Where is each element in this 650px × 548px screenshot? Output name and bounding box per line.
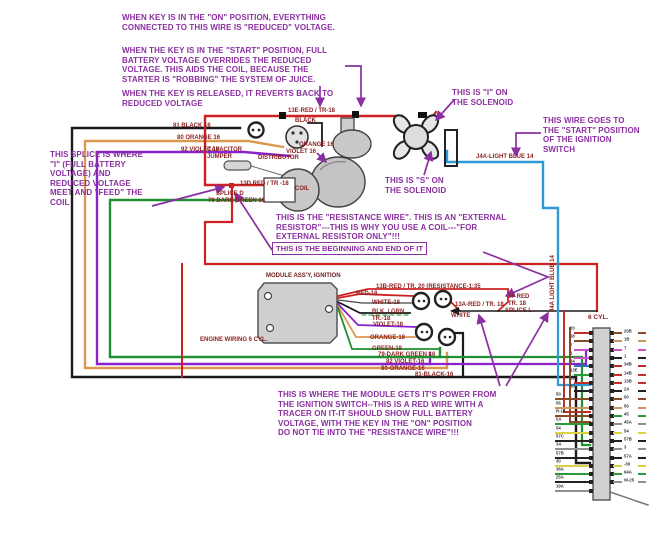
pin-wire-right-dash	[638, 465, 646, 467]
pin-wire-right	[613, 365, 622, 367]
label-red-18: RED-18	[356, 291, 377, 298]
label-79-green: 79 DARK GREEN 16	[208, 198, 265, 205]
label-black: BLACK	[295, 118, 316, 125]
pin-wire-right	[613, 415, 622, 417]
note-s-solenoid: THIS IS "S" ONTHE SOLENOID	[385, 176, 446, 195]
pin-left	[589, 389, 593, 393]
pin-wire-left	[555, 448, 593, 450]
pin-left	[589, 422, 593, 426]
pin-left	[589, 406, 593, 410]
pin-wire-right-dash	[638, 440, 646, 442]
pin-label-right: 45	[624, 412, 629, 417]
pin-wire-left	[555, 423, 593, 425]
pin-wire-right	[613, 332, 622, 334]
pin-label-left: 13E	[570, 368, 578, 373]
pin-label-left: 36A	[556, 467, 564, 472]
pin-left	[589, 364, 593, 368]
pin-wire-right	[613, 457, 622, 459]
label-capacitor: CAPACITORJUMPER	[207, 147, 242, 160]
pin-left	[589, 439, 593, 443]
label-distributor: DISTRIBUTOR	[258, 155, 299, 162]
pin-label-left: R-14	[556, 409, 565, 414]
pointer-arrow-start-voltage	[345, 66, 361, 106]
pin-label-left: 19A	[556, 484, 564, 489]
pin-left	[589, 356, 593, 360]
label-13b-red: 13B-RED / TR. 20 (RESISTANCE-1:35	[376, 284, 481, 291]
pin-label-left: 20	[570, 326, 575, 331]
label-j4a-blue: J4A-LIGHT BLUE 14	[476, 154, 533, 161]
pin-label-left: 7	[570, 343, 572, 348]
note-begin-end: THIS IS THE BEGINNING AND END OF IT	[272, 242, 427, 255]
label-orange-18: ORANGE-18	[370, 335, 405, 342]
pin-label-left: 13C	[570, 376, 578, 381]
pin-label-right: 14B	[624, 371, 632, 376]
pin-wire-right	[613, 340, 622, 342]
pin-wire-right	[613, 374, 622, 376]
pin-label-left: 3A	[556, 442, 561, 447]
label-orange-16: ORANGE 16	[299, 142, 334, 149]
pin-wire-right-dash	[638, 407, 646, 409]
capacitor	[224, 161, 288, 177]
pin-wire-right	[613, 448, 622, 450]
pin-label-left: 18	[570, 334, 575, 339]
pin-label-right: 50	[624, 395, 629, 400]
pin-label-right: 56	[624, 404, 629, 409]
label-engine-wiring: ENGINE WIRING 6 CYL.	[200, 337, 267, 344]
wiring-diagram: WHEN KEY IS IN THE "ON" POSITION, EVERYT…	[0, 0, 650, 548]
pin-left	[589, 431, 593, 435]
pin-label-right: 20B	[624, 329, 632, 334]
pin-left	[589, 489, 593, 493]
pin-left	[589, 472, 593, 476]
pin-label-left: 54	[556, 426, 561, 431]
pin-label-right: -30	[624, 462, 630, 467]
pin-wire-right	[613, 349, 622, 351]
pin-label-left: 34	[570, 359, 575, 364]
pin-label-right: 57B	[624, 437, 632, 442]
harness-connector-6cyl	[593, 328, 610, 500]
pin-left	[589, 331, 593, 335]
pin-left	[589, 480, 593, 484]
pin-label-right: 1	[624, 354, 626, 359]
label-13d-red: 13D RED / TR -18	[240, 181, 289, 188]
pin-wire-right-dash	[638, 423, 646, 425]
label-blk-grn: BLK. / GRNTR.-18	[372, 309, 404, 322]
pin-wire-right-dash	[638, 432, 646, 434]
pin-wire-right-dash	[638, 365, 646, 367]
pin-wire-right	[613, 432, 622, 434]
note-resistance: THIS IS THE "RESISTANCE WIRE". THIS IS A…	[276, 213, 506, 242]
pin-wire-right-dash	[638, 398, 646, 400]
pin-label-right: 13B	[624, 379, 632, 384]
note-key-start: WHEN THE KEY IS IN THE "START" POSITION,…	[122, 46, 327, 84]
pin-wire-left	[555, 490, 593, 492]
pin-label-left: 1	[570, 351, 572, 356]
label-coil: COIL	[295, 186, 309, 193]
pin-wire-right-dash	[638, 374, 646, 376]
pin-wire-right	[613, 423, 622, 425]
pin-wire-right-dash	[638, 448, 646, 450]
pin-label-left: 10	[570, 384, 575, 389]
pointer-arrow-start-wire	[516, 133, 541, 156]
pin-wire-right	[613, 481, 622, 483]
label-82-violet-b: 82 VIOLET-16	[386, 359, 424, 366]
pin-wire-right-dash	[638, 332, 646, 334]
label-white: WHITE	[451, 313, 470, 320]
label-6cyl: 6 CYL.	[588, 315, 608, 322]
pin-label-left: 57C	[556, 434, 564, 439]
pin-label-left: 25A	[556, 475, 564, 480]
note-start-wire: THIS WIRE GOES TOTHE "START" POSIITIONOF…	[543, 116, 640, 154]
label-j4a-blue-vertical: J4A LIGHT BLUE 14	[550, 255, 556, 312]
label-violet-18: VIOLET-18	[373, 322, 403, 329]
pointer-arrow-module-power-2	[506, 313, 548, 386]
pin-label-right: 1B	[624, 337, 629, 342]
note-i-solenoid: THIS IS "I" ONTHE SOLENOID	[452, 88, 513, 107]
pin-label-right: W-25	[624, 478, 634, 483]
pin-label-left: 57B	[556, 451, 564, 456]
wire-black-branch	[455, 333, 463, 377]
pin-wire-right	[613, 398, 622, 400]
pin-wire-right-dash	[638, 349, 646, 351]
pin-wire-right	[613, 357, 622, 359]
label-79-green-b: 79-DARK GREEN 16	[378, 352, 435, 359]
label-module: MODULE ASS'Y, IGNITION	[266, 273, 341, 280]
pin-left	[589, 339, 593, 343]
harness-diagonal	[610, 492, 648, 505]
pin-wire-right	[613, 407, 622, 409]
pin-label-right: 94A	[624, 470, 632, 475]
pin-label-left: 30	[556, 459, 561, 464]
pin-wire-right-dash	[638, 457, 646, 459]
pin-wire-right	[613, 465, 622, 467]
pin-label-left: 50	[556, 392, 561, 397]
pin-left	[589, 348, 593, 352]
distributor-bullet-connector	[249, 123, 264, 138]
wire-tick	[418, 112, 427, 118]
pointer-arrow-violet-terminal	[317, 153, 326, 162]
pin-label-left: 56	[556, 401, 561, 406]
pin-wire-right-dash	[638, 481, 646, 483]
note-key-on: WHEN KEY IS IN THE "ON" POSITION, EVERYT…	[122, 13, 335, 32]
pin-left	[589, 381, 593, 385]
pin-wire-right	[613, 382, 622, 384]
pin-left	[589, 447, 593, 451]
pin-left	[589, 456, 593, 460]
pin-left	[589, 414, 593, 418]
pin-wire-right-dash	[638, 415, 646, 417]
label-81-black: 81 BLACK 16	[173, 123, 211, 130]
pin-wire-right-dash	[638, 382, 646, 384]
wire-tick	[279, 112, 286, 119]
pin-label-right: 57A	[624, 454, 632, 459]
pin-wire-right	[613, 473, 622, 475]
label-13a-red: 13A-RED / TR. 18	[455, 302, 504, 309]
bullet-connectors	[413, 291, 455, 345]
label-81-black-b: 81-BLACK-16	[415, 372, 453, 379]
pin-label-right: 45A	[624, 420, 632, 425]
pin-label-right: 54	[624, 429, 629, 434]
pointer-arrow-module-power-1	[479, 315, 500, 386]
pin-wire-right-dash	[638, 357, 646, 359]
pin-wire-right-dash	[638, 390, 646, 392]
pin-wire-right-dash	[638, 340, 646, 342]
pin-label-right: 7	[624, 346, 626, 351]
pin-wire-right-dash	[638, 473, 646, 475]
pin-label-left: 5A	[556, 417, 561, 422]
pin-wire-right	[613, 390, 622, 392]
pin-left	[589, 397, 593, 401]
note-module-power: THIS IS WHERE THE MODULE GETS IT'S POWER…	[278, 390, 496, 438]
wire-tick	[352, 111, 359, 118]
coil	[264, 169, 319, 211]
label-splice-d: SPLICE D	[216, 191, 244, 198]
note-splice: THIS SPLICE IS WHERE"I" (FULL BATTERYVOL…	[50, 150, 143, 208]
label-3f-red: 3F REDTR. 18	[508, 294, 529, 307]
label-splice-l: SPLICE L	[505, 308, 532, 315]
label-13e-red: 13E-RED / TR-18	[288, 108, 335, 115]
pin-left	[589, 464, 593, 468]
pin-wire-right	[613, 440, 622, 442]
note-key-released: WHEN THE KEY IS RELEASED, IT REVERTS BAC…	[122, 89, 333, 108]
pin-left	[589, 373, 593, 377]
label-white-18: WHITE-18	[372, 300, 400, 307]
distributor-body	[311, 118, 371, 207]
pin-label-right: 2A	[624, 387, 629, 392]
pin-label-right: 3	[624, 445, 626, 450]
label-80-orange: 80 ORANGE 16	[177, 135, 220, 142]
ignition-module	[258, 283, 337, 343]
pin-label-right: 34B	[624, 362, 632, 367]
splice-d-node	[229, 183, 234, 188]
